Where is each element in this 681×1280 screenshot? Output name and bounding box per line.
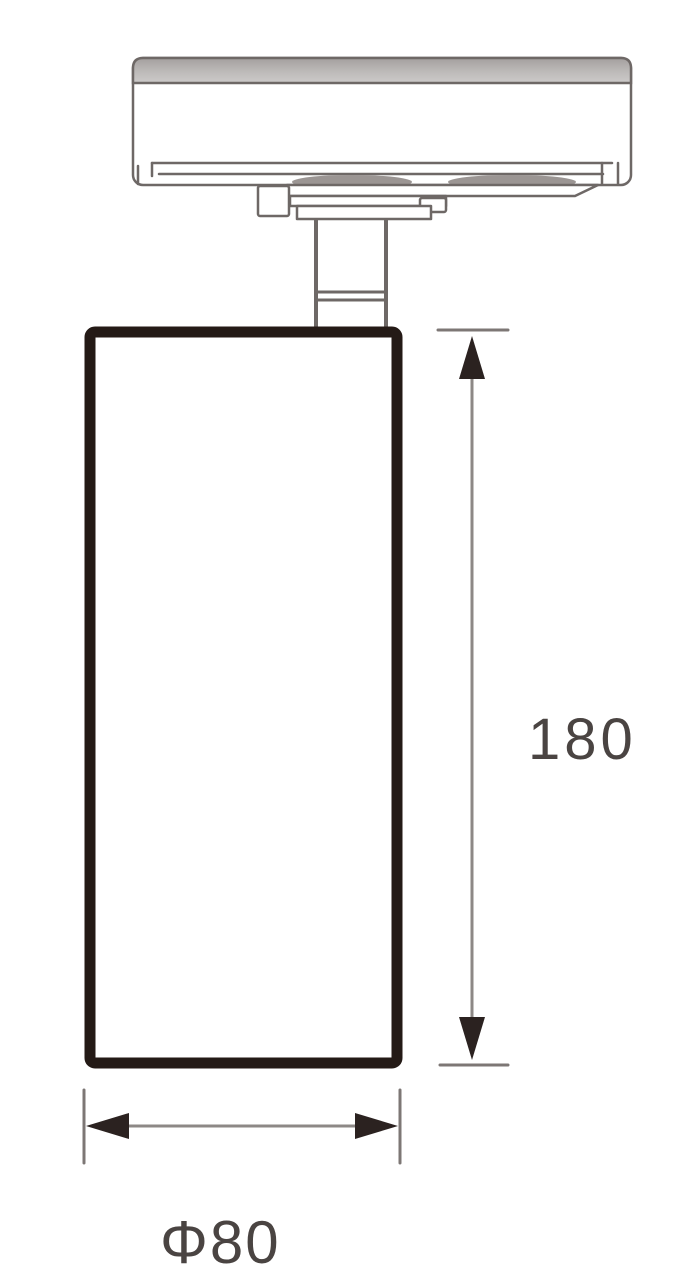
lamp-body — [90, 332, 397, 1063]
stem — [316, 219, 386, 327]
adapter-bottom-plate — [297, 206, 431, 219]
adapter-left-tab — [258, 186, 289, 216]
height-dim-label: 180 — [528, 707, 637, 772]
track-rail-top-band — [133, 58, 631, 83]
height-dim-arrow-down-icon — [459, 1017, 485, 1060]
diameter-dim-label: Φ80 — [160, 1209, 281, 1276]
height-dim-arrow-up-icon — [459, 336, 485, 379]
lamp-body-outline — [90, 332, 397, 1063]
diameter-dim-arrow-right-icon — [355, 1113, 398, 1139]
spotlight-dimension-diagram: 180 Φ80 — [0, 0, 681, 1280]
diameter-dimension: Φ80 — [84, 1090, 400, 1276]
adapter-flange-bar — [287, 185, 598, 196]
height-dimension: 180 — [438, 330, 637, 1065]
track-rail — [133, 58, 631, 185]
diameter-dim-arrow-left-icon — [86, 1113, 129, 1139]
drawing-canvas: 180 Φ80 — [0, 0, 681, 1280]
